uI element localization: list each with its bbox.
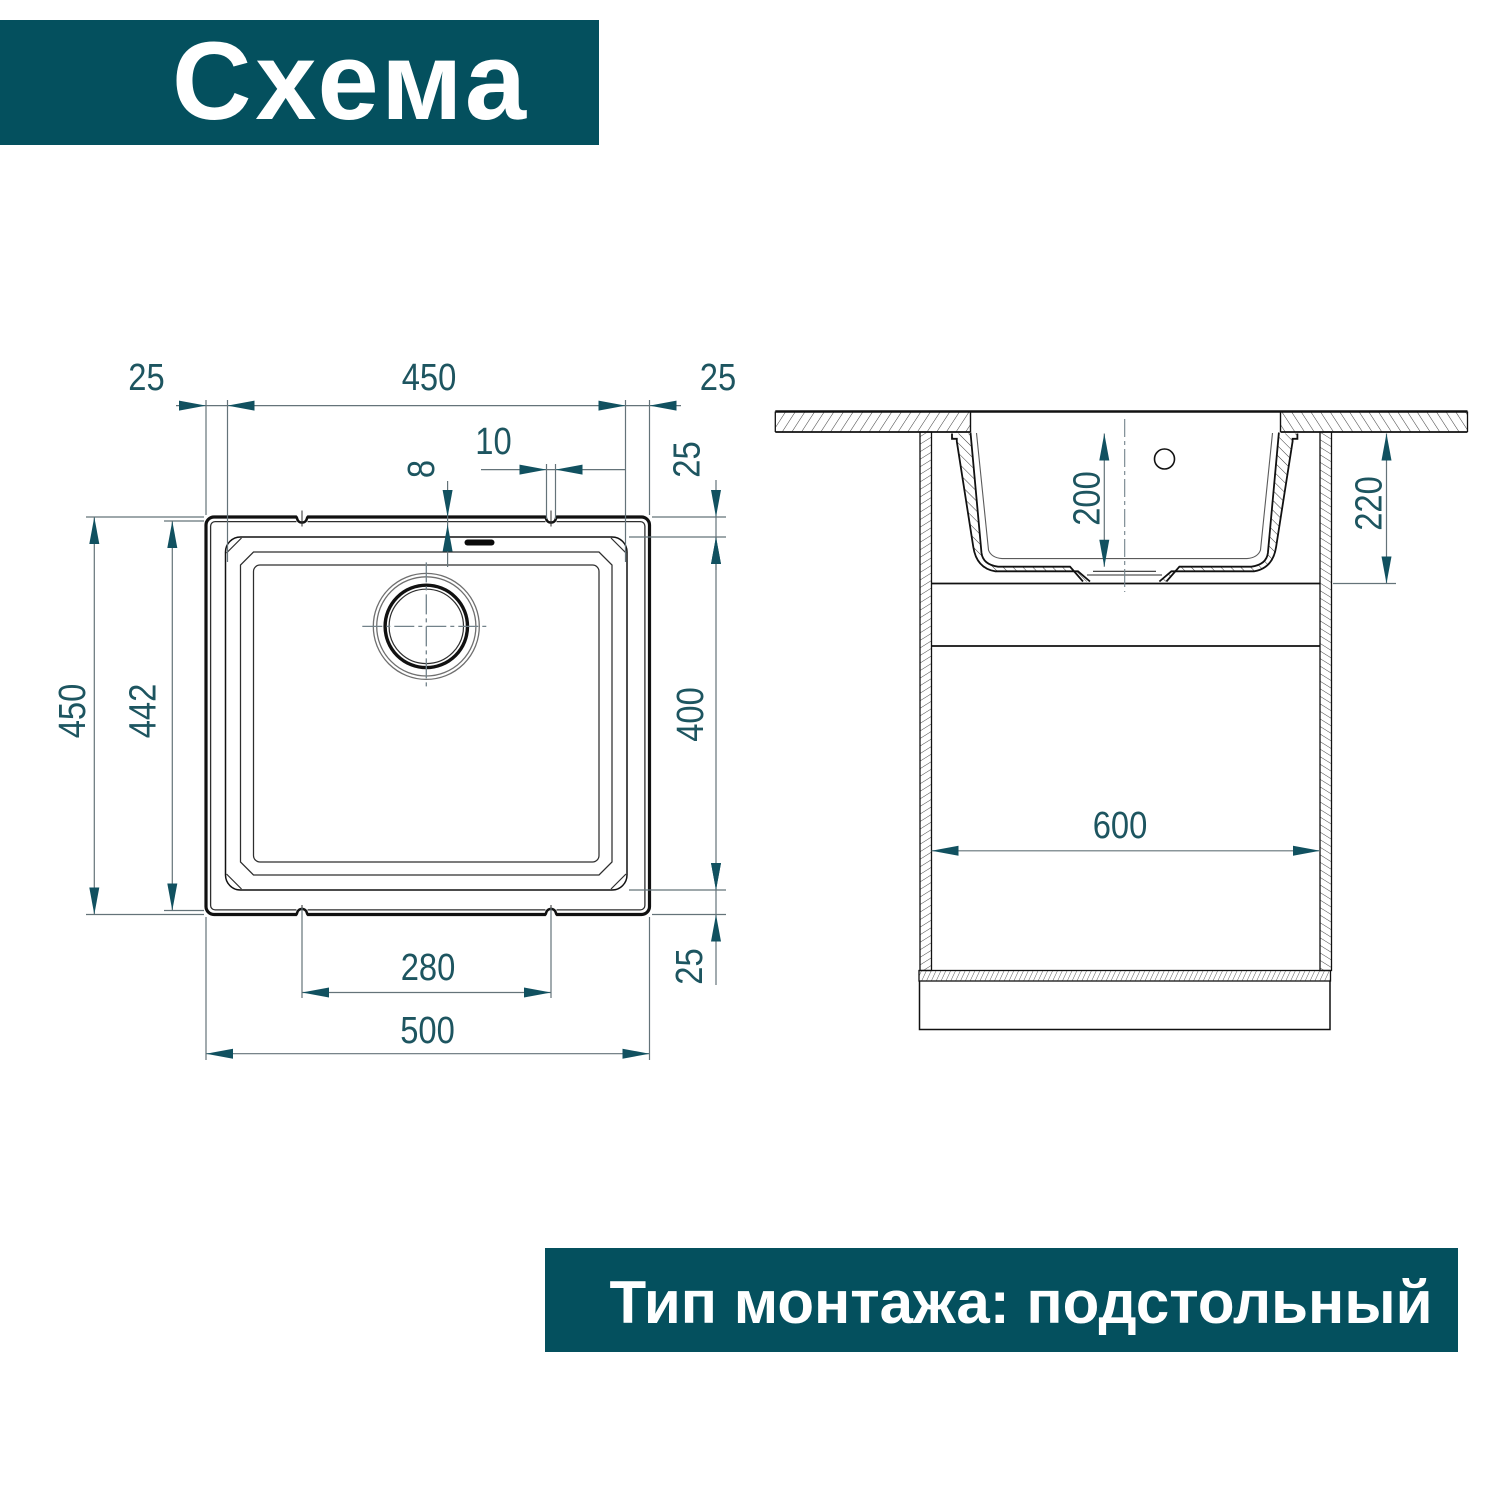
svg-text:220: 220	[1348, 476, 1390, 531]
svg-text:442: 442	[122, 684, 164, 739]
svg-text:200: 200	[1067, 471, 1109, 526]
svg-text:25: 25	[669, 948, 711, 984]
svg-text:450: 450	[402, 357, 457, 399]
svg-text:10: 10	[475, 421, 511, 463]
svg-text:8: 8	[401, 460, 443, 478]
svg-text:Схема: Схема	[172, 20, 527, 143]
svg-text:Тип монтажа: подстольный: Тип монтажа: подстольный	[610, 1269, 1433, 1336]
svg-text:400: 400	[670, 687, 712, 742]
svg-text:25: 25	[700, 357, 736, 399]
svg-text:280: 280	[401, 947, 456, 989]
svg-text:25: 25	[128, 357, 164, 399]
svg-text:450: 450	[52, 684, 94, 739]
svg-text:600: 600	[1093, 805, 1148, 847]
svg-text:25: 25	[666, 441, 708, 477]
svg-text:500: 500	[400, 1010, 455, 1052]
